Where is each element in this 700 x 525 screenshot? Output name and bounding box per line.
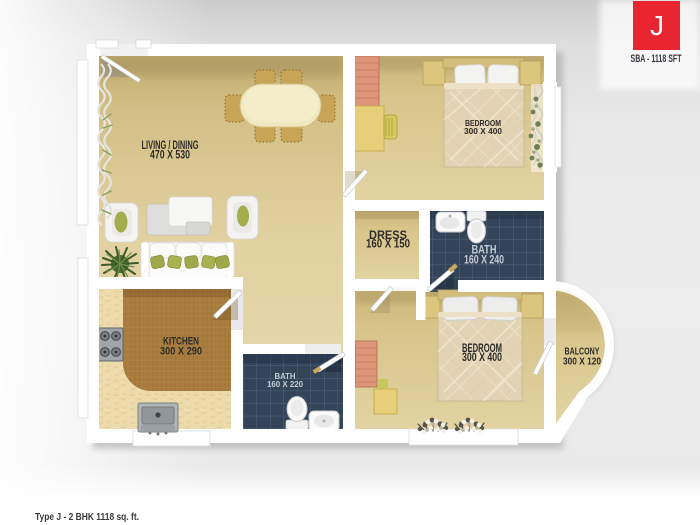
svg-text:160 X 150: 160 X 150 xyxy=(366,239,410,251)
svg-text:300 X 120: 300 X 120 xyxy=(563,356,601,368)
svg-text:160 X 240: 160 X 240 xyxy=(464,255,504,267)
svg-text:300 X 290: 300 X 290 xyxy=(160,345,202,357)
svg-text:160 X 220: 160 X 220 xyxy=(267,380,304,389)
svg-text:J: J xyxy=(650,10,664,41)
svg-text:Type J - 2 BHK 1118 sq. ft.: Type J - 2 BHK 1118 sq. ft. xyxy=(35,511,139,523)
svg-text:SBA - 1118 SFT: SBA - 1118 SFT xyxy=(631,53,682,65)
svg-text:470 X 530: 470 X 530 xyxy=(150,148,190,162)
svg-text:300 X 400: 300 X 400 xyxy=(464,126,502,136)
svg-text:300 X 400: 300 X 400 xyxy=(462,352,502,364)
